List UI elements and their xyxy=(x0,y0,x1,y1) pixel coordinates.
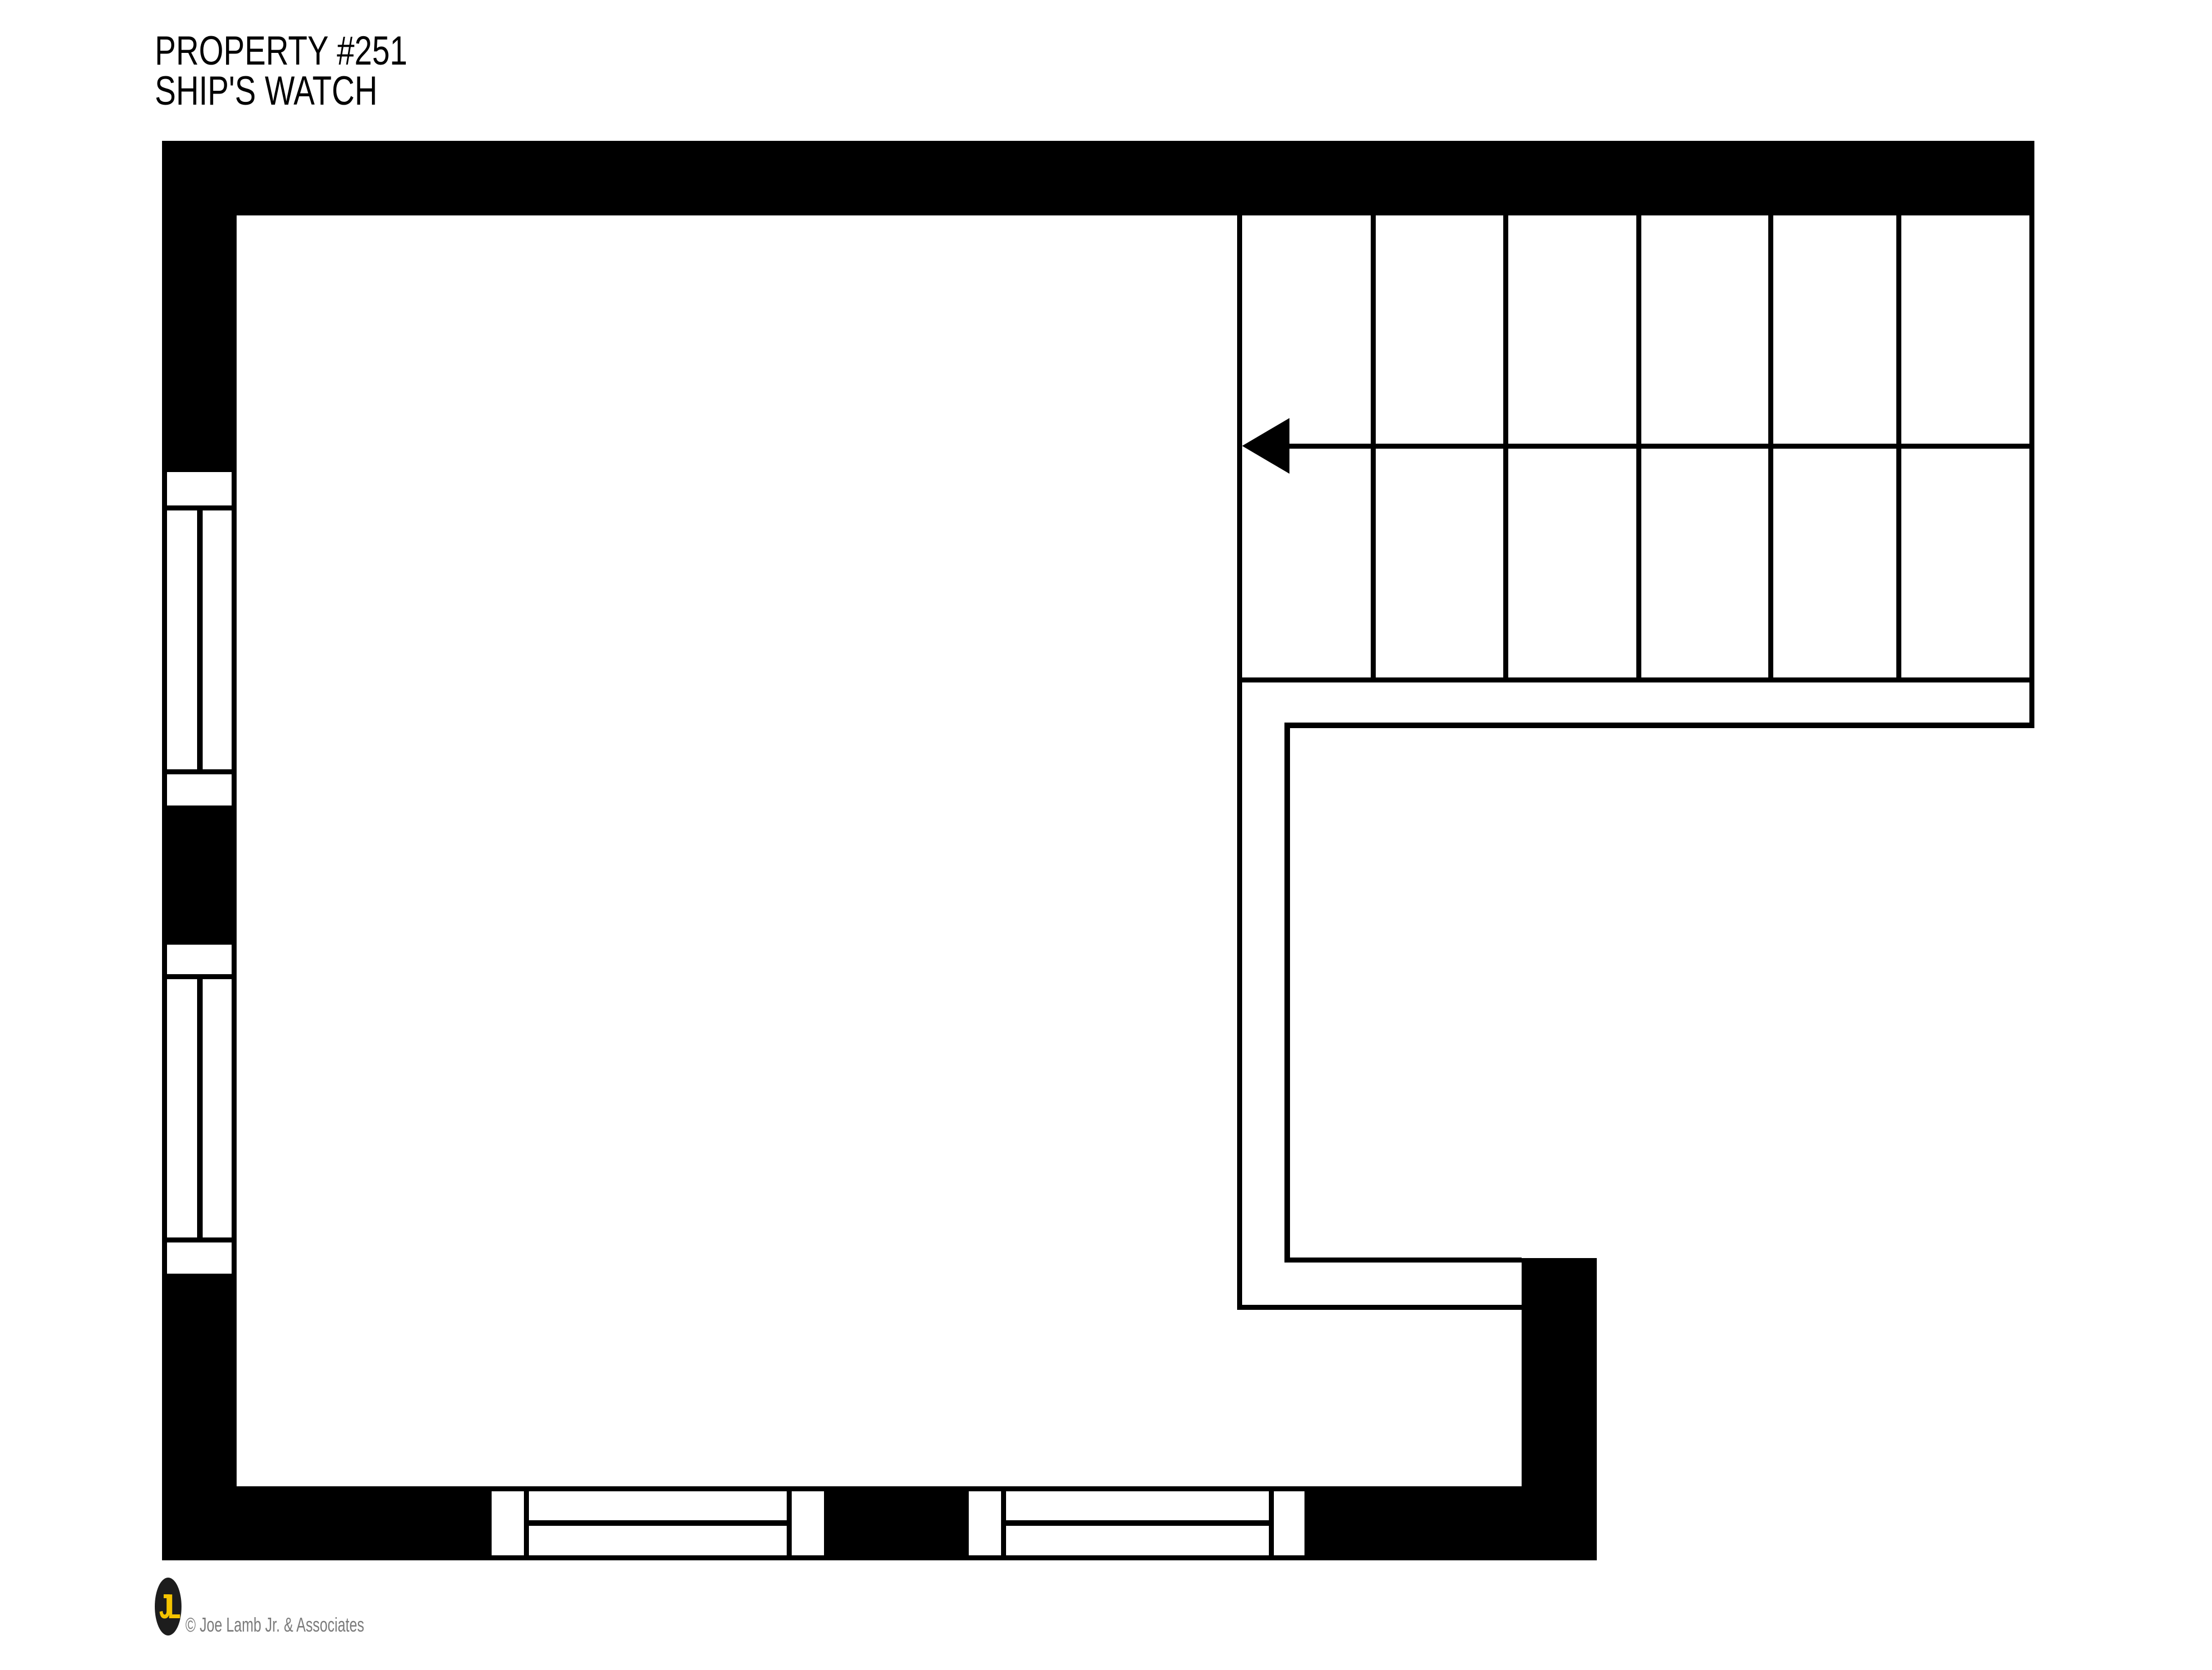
landing-bottom-outer-rail xyxy=(1237,1305,1522,1310)
window-left-2-jamb-outer xyxy=(162,945,167,1274)
window-bottom-2-jamb-outer xyxy=(969,1486,1304,1491)
window-left-1-jamb-inner xyxy=(232,472,237,805)
wall-top xyxy=(162,141,2034,215)
window-left-2-jamb-inner xyxy=(232,945,237,1274)
window-left-1-jamb-outer xyxy=(162,472,167,805)
wall-right xyxy=(2029,215,2034,728)
landing-bottom-inner-rail xyxy=(1284,1258,1522,1263)
stair-divider xyxy=(1636,215,1641,682)
window-left-2-mullion xyxy=(197,974,203,1242)
window-bottom-2-jamb-inner xyxy=(969,1555,1304,1560)
stair-divider xyxy=(1503,215,1508,682)
stairs-direction-arrow-icon xyxy=(1242,418,1289,474)
stair-divider xyxy=(1768,215,1773,682)
landing-top-rail xyxy=(1284,723,2034,728)
window-bottom-1-jamb-outer xyxy=(492,1486,824,1491)
floor-plan-page: PROPERTY #251 SHIP'S WATCH J xyxy=(0,0,2212,1670)
page-title: PROPERTY #251 SHIP'S WATCH xyxy=(155,31,408,111)
title-line-2: SHIP'S WATCH xyxy=(155,71,408,111)
window-bottom-1-mullion xyxy=(524,1520,792,1526)
joe-lamb-logo: JL xyxy=(155,1578,182,1635)
wall-bottom-segment-2 xyxy=(824,1486,969,1560)
title-line-1: PROPERTY #251 xyxy=(155,31,408,71)
stairs-bottom-edge xyxy=(1237,677,2034,682)
stair-divider xyxy=(1371,215,1376,682)
stairs-left-edge xyxy=(1237,215,1242,1310)
wall-landing-block xyxy=(1522,1258,1597,1560)
copyright-text: © Joe Lamb Jr. & Associates xyxy=(185,1613,364,1637)
window-bottom-1-jamb-inner xyxy=(492,1555,824,1560)
stairs-mid-line xyxy=(1286,444,2029,449)
window-left-1-mullion xyxy=(197,505,203,774)
wall-left-middle xyxy=(162,805,237,945)
window-bottom-2-mullion xyxy=(1001,1520,1274,1526)
wall-bottom-segment-1 xyxy=(162,1486,492,1560)
landing-inner-rail xyxy=(1284,723,1290,1263)
logo-monogram: JL xyxy=(159,1587,177,1627)
stair-divider xyxy=(1896,215,1901,682)
wall-left-upper xyxy=(162,141,237,472)
